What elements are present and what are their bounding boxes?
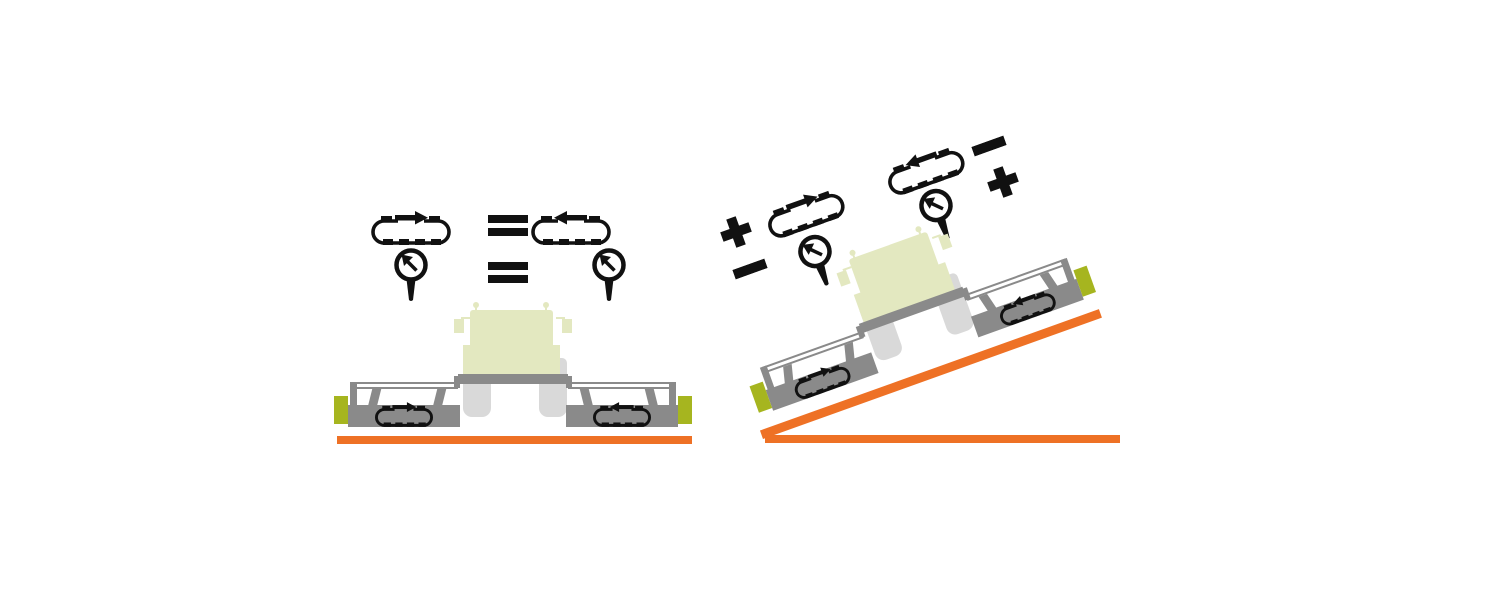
belt-arrow-left-icon <box>995 285 1058 328</box>
plus-icon <box>714 210 757 253</box>
center-toolbar <box>458 374 568 384</box>
flat-ground-line <box>337 436 692 444</box>
minus-icon <box>971 136 1006 157</box>
slope-base-line <box>765 435 1120 443</box>
mirror <box>454 319 464 333</box>
belt-arrow-right-icon <box>375 402 433 427</box>
side-rail <box>568 382 674 389</box>
belt-arrow-left-icon <box>531 211 611 245</box>
belt-arrow-left-icon <box>593 402 651 427</box>
diagram-canvas <box>0 0 1500 600</box>
end-post <box>350 382 357 407</box>
end-plate-right <box>678 396 692 424</box>
end-plate-left <box>334 396 348 424</box>
equals-icon <box>488 262 528 283</box>
belt-arrow-right-icon <box>790 359 853 402</box>
mirror <box>837 270 851 287</box>
mirror <box>938 234 952 251</box>
side-rail <box>352 382 458 389</box>
mirror <box>562 319 572 333</box>
gauge-icon <box>591 246 627 302</box>
machine-flat <box>334 302 692 436</box>
cab <box>470 310 553 347</box>
equals-icon <box>488 215 528 236</box>
minus-icon <box>732 259 767 280</box>
end-post <box>669 382 676 407</box>
belt-arrow-right-icon <box>371 211 451 245</box>
gauge-icon <box>393 246 429 302</box>
belt-arrow-right-icon <box>762 183 849 242</box>
